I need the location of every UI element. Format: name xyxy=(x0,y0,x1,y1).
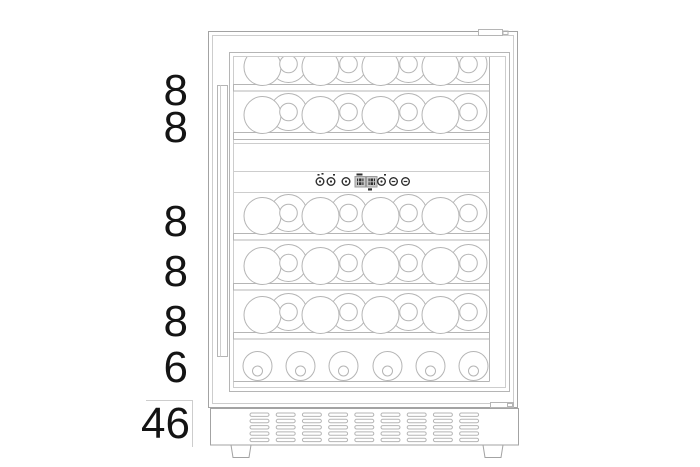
bottle-row-lying xyxy=(244,245,487,285)
bottle-row-lying xyxy=(244,94,487,134)
bottle-row-lying xyxy=(244,46,487,86)
row-count-label: 8 xyxy=(100,300,188,344)
base-plinth xyxy=(211,409,519,446)
vent-grille xyxy=(250,413,479,442)
wine-cooler-capacity-diagram: 8 8 8 8 8 6 46 xyxy=(0,0,700,467)
bottle-row-lying xyxy=(244,294,487,334)
row-count-label: 6 xyxy=(100,346,188,390)
total-capacity-label: 46 xyxy=(100,402,190,446)
row-count-label: 8 xyxy=(100,106,188,150)
door-handle xyxy=(218,86,228,357)
control-panel xyxy=(316,173,409,191)
row-count-label: 8 xyxy=(100,250,188,294)
door-latch xyxy=(491,403,514,408)
bottle-row-standing xyxy=(243,352,488,381)
foot-left xyxy=(231,445,251,458)
bottle-row-lying xyxy=(244,195,487,235)
row-count-label: 8 xyxy=(100,200,188,244)
foot-right xyxy=(483,445,503,458)
